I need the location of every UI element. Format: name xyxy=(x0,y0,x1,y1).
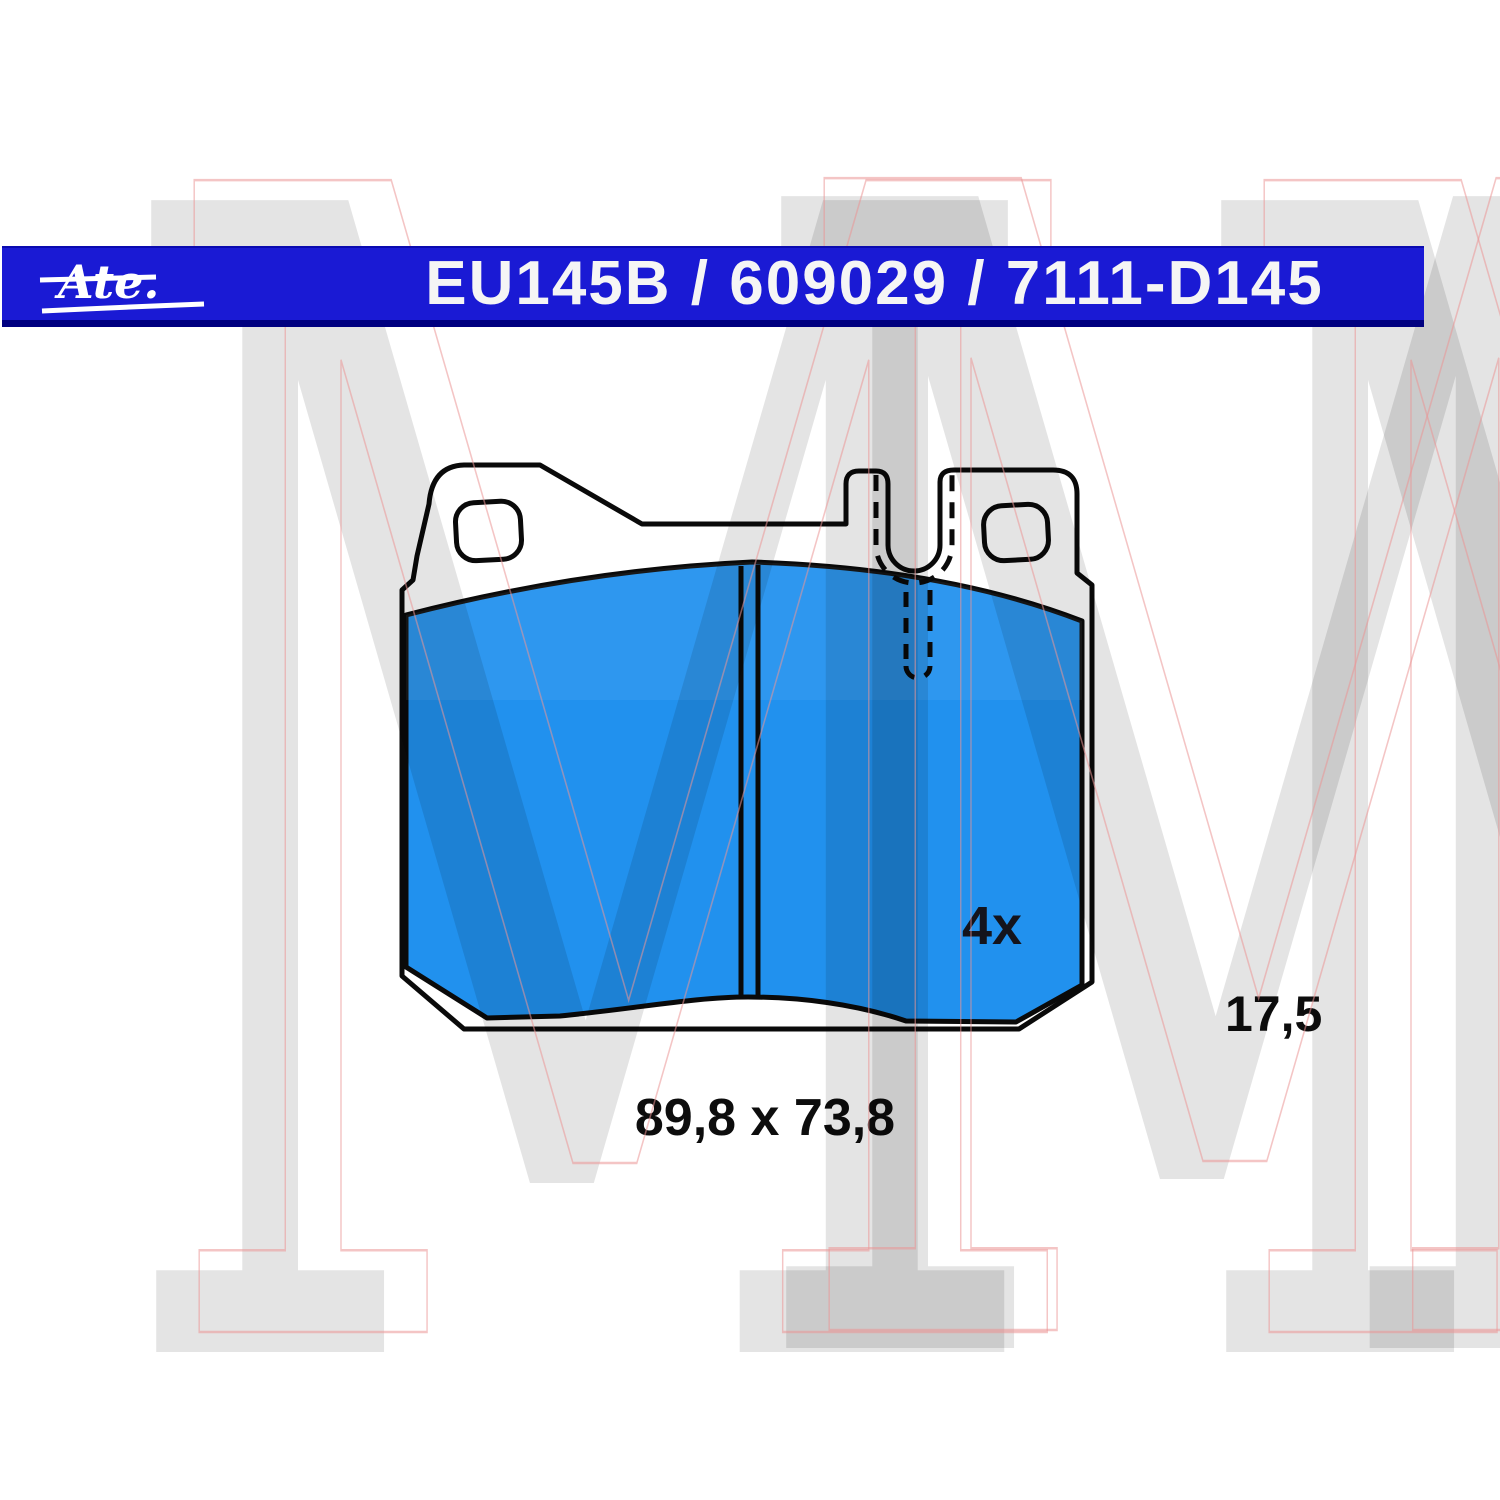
ate-logo-text: Ate. xyxy=(54,255,159,309)
thickness-label: 17,5 xyxy=(1225,985,1365,1043)
dimensions-label: 89,8 x 73,8 xyxy=(540,1088,990,1148)
part-numbers: EU145B / 609029 / 7111-D145 xyxy=(332,250,1417,318)
ate-logo: Ate. xyxy=(36,254,246,318)
brake-pad-diagram: 4x xyxy=(0,0,1500,1500)
mounting-hole-left xyxy=(455,500,523,561)
product-image-page: { "header": { "logo_text": "Ate.", "part… xyxy=(0,0,1500,1500)
header-banner: Ate. EU145B / 609029 / 7111-D145 xyxy=(2,246,1424,327)
mounting-hole-right xyxy=(983,503,1050,561)
quantity-label: 4x xyxy=(962,896,1022,956)
